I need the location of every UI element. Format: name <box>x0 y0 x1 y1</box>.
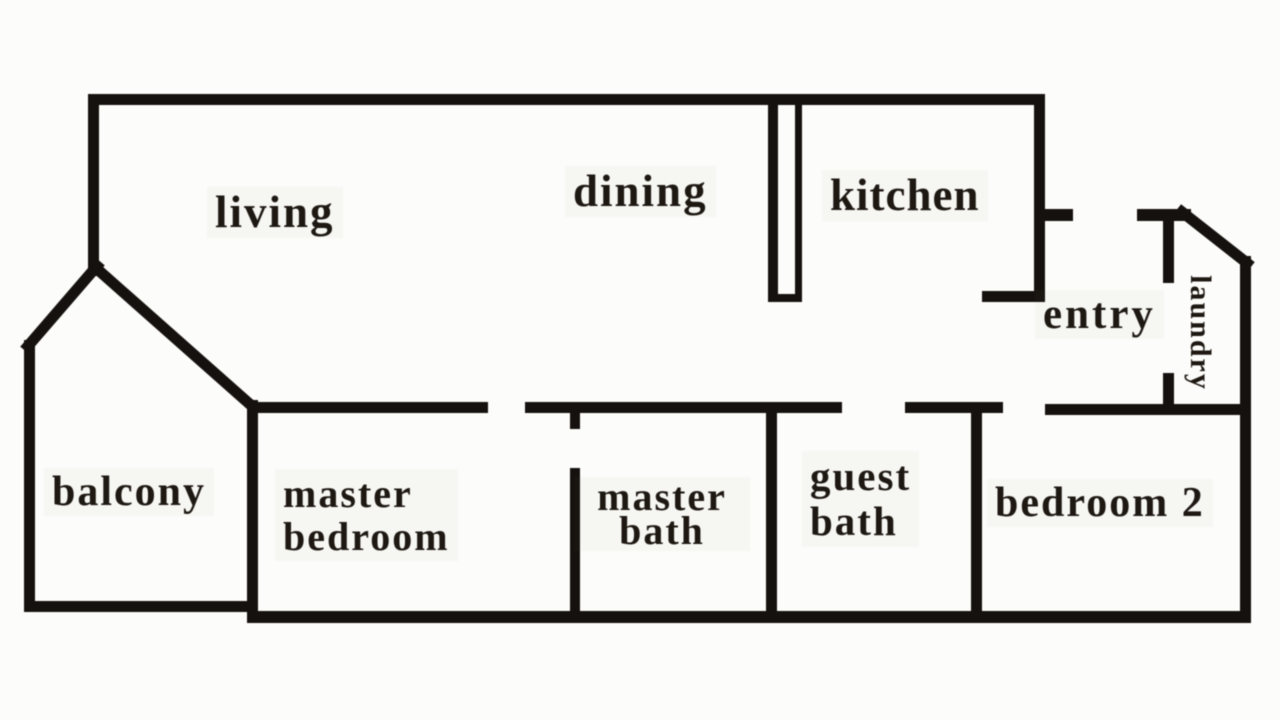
balcony-left-exterior-wall <box>24 340 35 612</box>
top-exterior-wall <box>88 94 1045 105</box>
room-label-dining: dining <box>565 166 716 217</box>
balcony-bottom-exterior-wall <box>24 601 258 612</box>
room-label-entry: entry <box>1035 290 1164 339</box>
balcony-upper-right-diagonal-wall <box>96 268 253 407</box>
floor-plan: living dining kitchen entry laundry balc… <box>0 0 1280 720</box>
room-label-balcony: balcony <box>44 468 214 516</box>
hall-wall-guest-bath-segment <box>905 402 1003 413</box>
room-label-kitchen: kitchen <box>822 170 988 221</box>
room-label-master-bedroom-line2: bedroom <box>283 515 450 558</box>
room-label-master-bedroom: master bedroom <box>275 469 458 561</box>
floor-plan-image: living dining kitchen entry laundry balc… <box>0 0 1280 720</box>
bottom-exterior-wall <box>247 611 1251 623</box>
room-label-guest-bath: guest bath <box>802 451 919 547</box>
room-label-bedroom-2: bedroom 2 <box>987 479 1213 527</box>
laundry-left-wall-upper <box>1163 219 1174 283</box>
entry-door-left-stub-wall <box>1045 209 1073 221</box>
laundry-corner-diagonal-wall <box>1182 212 1247 263</box>
kitchen-right-wall <box>1034 94 1045 302</box>
master-bath-left-wall-upper <box>570 402 580 429</box>
hall-wall-bedroom2-segment <box>1045 404 1251 415</box>
right-exterior-wall <box>1240 256 1251 623</box>
balcony-master-bedroom-wall <box>247 400 258 619</box>
guest-bath-left-wall <box>766 402 777 618</box>
room-label-master-bath: master bath <box>574 477 750 551</box>
balcony-upper-left-diagonal-wall <box>28 266 97 346</box>
guest-bath-right-wall <box>971 402 982 618</box>
hall-wall-master-bedroom-segment <box>247 402 488 413</box>
room-label-living: living <box>207 187 343 238</box>
room-label-laundry: laundry <box>1180 263 1220 403</box>
dining-kitchen-divider-wall <box>768 98 802 302</box>
laundry-left-wall-lower <box>1163 373 1174 411</box>
room-label-guest-bath-line2: bath <box>810 499 911 544</box>
room-label-guest-bath-line1: guest <box>810 454 911 499</box>
room-label-master-bedroom-line1: master <box>283 472 450 515</box>
living-left-exterior-wall <box>88 94 99 276</box>
room-label-master-bath-line2: bath <box>582 514 742 548</box>
